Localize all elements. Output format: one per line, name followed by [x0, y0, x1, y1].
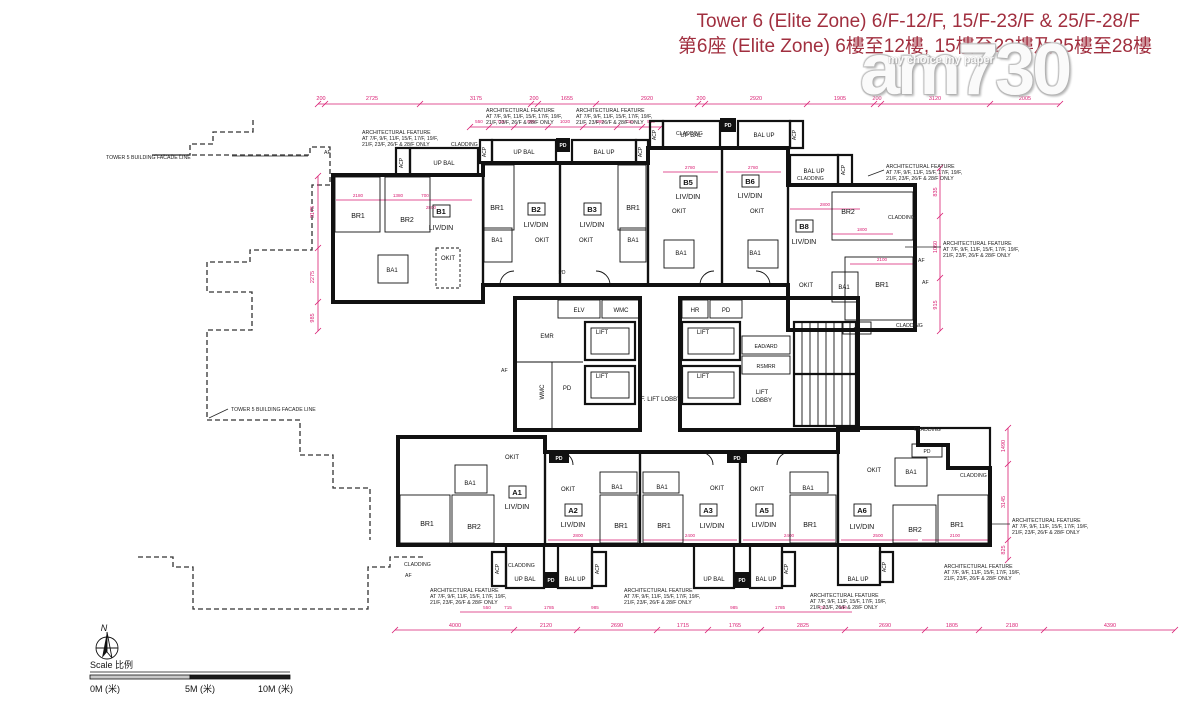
- a6-living-label: LIV/DIN: [850, 524, 875, 531]
- b1-kitchen-label: OKIT: [441, 256, 455, 262]
- b1-living-label: LIV/DIN: [429, 225, 454, 232]
- a3-living-label: LIV/DIN: [700, 523, 725, 530]
- f-lift-lobby-label: F. LIFT LOBBY: [641, 397, 681, 403]
- dim-bot-6: 2690: [879, 623, 891, 629]
- lift-2-label: LIFT: [596, 374, 609, 380]
- balcony-label-a6: BAL UP: [847, 577, 868, 583]
- a2-code-label: A2: [568, 506, 578, 515]
- a6-br2-wall: [893, 505, 936, 543]
- b6-kitchen-label: OKIT: [750, 209, 764, 215]
- plan-title-line2: 第6座 (Elite Zone) 6樓至12樓, 15樓至23樓及25樓至28樓: [678, 35, 1152, 57]
- dim-left-1: 2275: [310, 271, 316, 283]
- dim-top-4: 1655: [561, 96, 573, 102]
- scale-seg-0-5: [90, 675, 190, 679]
- scale-5m-label: 5M (米): [185, 683, 215, 694]
- b2-bath-label: BA1: [491, 238, 503, 244]
- dim-int-10: 2400: [685, 533, 696, 538]
- dim-top-11: 2005: [1019, 96, 1031, 102]
- facade-line-label-2: TOWER 5 BUILDING FACADE LINE: [231, 407, 316, 413]
- scale-title: Scale 比例: [90, 659, 133, 670]
- arch-note-9-l3: 21/F, 23/F, 26/F & 28/F ONLY: [1012, 530, 1080, 536]
- arch-note-8: ARCHITECTURAL FEATURE AT 7/F, 9/F, 11/F,…: [810, 593, 886, 611]
- facade-line-label-1: TOWER 5 BUILDING FACADE LINE: [106, 155, 191, 161]
- a1-living-label: LIV/DIN: [505, 504, 530, 511]
- arch-note-1: ARCHITECTURAL FEATURE AT 7/F, 9/F, 11/F,…: [362, 130, 438, 148]
- b3-code-label: B3: [587, 205, 597, 214]
- a3-br1-wall: [643, 495, 683, 543]
- tower5-facade-outline: TOWER 5 BUILDING FACADE LINE TOWER 5 BUI…: [106, 120, 425, 609]
- acp-label-b6: ACP: [792, 129, 798, 140]
- a2-living-label: LIV/DIN: [561, 522, 586, 529]
- arch-note-8-l3: 21/F, 23/F, 26/F & 28/F ONLY: [810, 605, 878, 611]
- lift-1-label: LIFT: [596, 330, 609, 336]
- a1-bath-label: BA1: [464, 481, 476, 487]
- a6-pd-label: PD: [924, 449, 931, 455]
- floor-plan-page: TOWER 5 BUILDING FACADE LINE TOWER 5 BUI…: [0, 0, 1179, 714]
- arch-note-7: ARCHITECTURAL FEATURE AT 7/F, 9/F, 11/F,…: [624, 588, 700, 606]
- balcony-label-b6: BAL UP: [753, 133, 774, 139]
- a3-pd-label: PD: [734, 456, 741, 462]
- dim-int-0: 2180: [353, 193, 364, 198]
- arch-note-4-l3: 21/F, 23/F, 26/F & 28/F ONLY: [886, 176, 954, 182]
- b5-code-label: B5: [683, 178, 693, 187]
- b5-living-label: LIV/DIN: [676, 194, 701, 201]
- dim-bot-8: 2180: [1006, 623, 1018, 629]
- dim-innerbot-3: 985: [591, 605, 599, 610]
- north-arrow: N: [96, 623, 118, 659]
- facade-dash-top: [152, 120, 253, 155]
- a5-code-label: A5: [759, 506, 769, 515]
- b3-br1-label: BR1: [626, 205, 640, 212]
- b8-living-label: LIV/DIN: [792, 239, 817, 246]
- b2-br1-wall: [484, 165, 514, 230]
- b8-code-label: B8: [799, 222, 809, 231]
- arch-note-9: ARCHITECTURAL FEATURE AT 7/F, 9/F, 11/F,…: [992, 518, 1088, 536]
- staircase: [794, 322, 856, 426]
- af-label-1: AF: [324, 150, 331, 156]
- dim-innerbot-1: 715: [504, 605, 512, 610]
- a6-code-label: A6: [857, 506, 867, 515]
- af-label-5: AF: [405, 573, 412, 579]
- elv-label: ELV: [574, 308, 585, 314]
- dim-left-0: 3175: [310, 206, 316, 218]
- dim-top-3: 200: [529, 96, 538, 102]
- dim-bot-7: 1805: [946, 623, 958, 629]
- b3-kitchen-label: OKIT: [579, 238, 593, 244]
- af-label-2: AF: [501, 368, 508, 374]
- dim-int-7: 1800: [857, 227, 868, 232]
- dim-int-8: 2100: [877, 257, 888, 262]
- a5-living-label: LIV/DIN: [752, 522, 777, 529]
- arch-note-3: ARCHITECTURAL FEATURE AT 7/F, 9/F, 11/F,…: [576, 108, 652, 126]
- dim-int-5: 2780: [748, 165, 759, 170]
- pd-label-bottom-2: PD: [739, 578, 746, 584]
- cladding-label-3: CLADDING: [797, 176, 824, 182]
- acp-label-a5: ACP: [784, 563, 790, 574]
- dim-top-10: 3120: [929, 96, 941, 102]
- balcony-label-b1: UP BAL: [433, 161, 455, 167]
- dim-int-3: 2800: [426, 205, 437, 210]
- balcony-label-a2: BAL UP: [564, 577, 585, 583]
- b8-bath-label: BA1: [838, 285, 850, 291]
- arch-note-1-l3: 21/F, 23/F, 26/F & 28/F ONLY: [362, 142, 430, 148]
- b1-br2-label: BR2: [400, 217, 414, 224]
- plan-title-line1: Tower 6 (Elite Zone) 6/F-12/F, 15/F-23/F…: [697, 11, 1141, 32]
- balcony-label-a1: UP BAL: [514, 577, 536, 583]
- facade-label-leader-2: [209, 409, 228, 418]
- b1-code-label: B1: [436, 207, 446, 216]
- dim-top-1: 2725: [366, 96, 378, 102]
- dim-bot-0: 4000: [449, 623, 461, 629]
- b1-bath-label: BA1: [386, 268, 398, 274]
- unit-a3-area: [640, 452, 740, 545]
- b2-pd-label: PD: [559, 270, 566, 276]
- lift-4-car: [688, 372, 734, 398]
- facade-dash-main: [152, 147, 370, 540]
- lift-4-label: LIFT: [697, 374, 710, 380]
- upper-wing-outer-wall: [333, 148, 915, 330]
- dim-rup-2: 915: [933, 300, 939, 309]
- arch-note-4: ARCHITECTURAL FEATURE AT 7/F, 9/F, 11/F,…: [868, 164, 962, 182]
- core-pd-left-label: PD: [563, 386, 572, 392]
- cladding-label-4: CLADDING: [888, 215, 915, 221]
- a1-br2-label: BR2: [467, 524, 481, 531]
- dim-int-6: 2800: [820, 202, 831, 207]
- dim-left-2: 985: [310, 313, 316, 322]
- a2-pd-label: PD: [556, 456, 563, 462]
- upper-wing: ACP UP BAL ACP UP BAL PD BAL UP ACP ACP …: [333, 118, 915, 334]
- a6-kitchen-label: OKIT: [867, 468, 881, 474]
- pd-label-bottom-1: PD: [548, 578, 555, 584]
- b8-br1-label: BR1: [875, 282, 889, 289]
- unit-a2-area: [545, 452, 640, 545]
- arch-note-6-l3: 21/F, 23/F, 26/F & 28/F ONLY: [430, 600, 498, 606]
- cladding-label-7: CLADDING: [960, 473, 987, 479]
- dim-innertop-0: 550: [475, 119, 483, 124]
- lift-lobby-label-1: LIFT: [756, 390, 769, 396]
- b8-br2-label: BR2: [841, 209, 855, 216]
- dim-top-2: 3175: [470, 96, 482, 102]
- af-label-3: AF: [918, 258, 925, 264]
- dim-int-9: 2800: [573, 533, 584, 538]
- facade-dash-bottom: [138, 557, 425, 609]
- a2-bath-label: BA1: [611, 485, 623, 491]
- pd-label-top-1: PD: [560, 143, 567, 149]
- cladding-label-2: CLADDING: [676, 131, 703, 137]
- balcony-label-b8: BAL UP: [803, 169, 824, 175]
- dim-innerbot-4: 985: [730, 605, 738, 610]
- dim-int-11: 2400: [784, 533, 795, 538]
- compass-needle-solid: [102, 632, 107, 658]
- b1-br1-label: BR1: [351, 213, 365, 220]
- a2-br1-label: BR1: [614, 523, 628, 530]
- dim-top-5: 2920: [641, 96, 653, 102]
- lift-3-car: [688, 328, 734, 354]
- a1-br2-wall: [452, 495, 494, 543]
- acp-label-b8: ACP: [841, 164, 847, 175]
- balcony-label-b2: UP BAL: [513, 150, 535, 156]
- b3-bath-label: BA1: [627, 238, 639, 244]
- arch-note-10: ARCHITECTURAL FEATURE AT 7/F, 9/F, 11/F,…: [944, 564, 1020, 582]
- ead-ard-label: EAD/ARD: [754, 344, 777, 350]
- b2-living-label: LIV/DIN: [524, 222, 549, 229]
- a2-kitchen-label: OKIT: [561, 487, 575, 493]
- core: EMR ELV WMC LIFT LIFT PD WMC F. LIFT LOB…: [515, 298, 858, 430]
- b6-code-label: B6: [745, 177, 755, 186]
- dim-int-4: 2780: [685, 165, 696, 170]
- dim-bot-9: 4390: [1104, 623, 1116, 629]
- b1-kitchen-zone: [436, 248, 460, 288]
- scale-10m-label: 10M (米): [258, 683, 293, 694]
- arch-note-2: ARCHITECTURAL FEATURE AT 7/F, 9/F, 11/F,…: [486, 108, 562, 126]
- rsmrr-label: RSMRR: [756, 364, 775, 370]
- acp-label-b2: ACP: [482, 146, 488, 157]
- dim-int-1: 1380: [393, 193, 404, 198]
- acp-label-b3: ACP: [638, 146, 644, 157]
- unit-a5-area: [740, 452, 838, 545]
- emr-label: EMR: [540, 334, 554, 340]
- af-label-4: AF: [922, 280, 929, 286]
- b6-bath-label: BA1: [749, 251, 761, 257]
- dim-rlo-2: 825: [1001, 545, 1007, 554]
- a5-bath-label: BA1: [802, 486, 814, 492]
- dim-bot-5: 2825: [797, 623, 809, 629]
- dim-int-13: 2100: [950, 533, 961, 538]
- acp-label-b1: ACP: [399, 157, 405, 168]
- b3-bath-wall: [620, 228, 646, 262]
- a1-br1-label: BR1: [420, 521, 434, 528]
- b6-living-label: LIV/DIN: [738, 193, 763, 200]
- core-pd-right-label: PD: [722, 308, 731, 314]
- dim-int-12: 2500: [873, 533, 884, 538]
- a3-kitchen-label: OKIT: [710, 486, 724, 492]
- wmc-label: WMC: [614, 308, 630, 314]
- compass-needle-outline: [107, 632, 112, 658]
- north-label: N: [101, 623, 108, 633]
- scale-bar: Scale 比例 0M (米) 5M (米) 10M (米): [90, 659, 293, 694]
- b8-kitchen-label: OKIT: [799, 283, 813, 289]
- a6-br2-label: BR2: [908, 527, 922, 534]
- dim-top-7: 2920: [750, 96, 762, 102]
- a6-bath-label: BA1: [905, 470, 917, 476]
- a5-br1-wall: [790, 495, 836, 543]
- a5-kitchen-label: OKIT: [750, 487, 764, 493]
- b3-br1-wall: [618, 165, 646, 230]
- dim-rlo-1: 3145: [1001, 496, 1007, 508]
- a3-br1-label: BR1: [657, 523, 671, 530]
- dim-rlo-0: 1490: [1001, 440, 1007, 452]
- arch-note-10-l3: 21/F, 23/F, 26/F & 28/F ONLY: [944, 576, 1012, 582]
- arch-note-4-leader: [868, 170, 884, 176]
- arch-note-3-l3: 21/F, 23/F, 26/F & 28/F ONLY: [576, 120, 644, 126]
- a3-bath-label: BA1: [656, 485, 668, 491]
- balcony-label-a3: UP BAL: [703, 577, 725, 583]
- dim-innerbot-5: 1785: [775, 605, 786, 610]
- arch-note-7-l3: 21/F, 23/F, 26/F & 28/F ONLY: [624, 600, 692, 606]
- dim-innerbot-2: 1785: [544, 605, 555, 610]
- balcony-label-a5: BAL UP: [755, 577, 776, 583]
- b2-br1-label: BR1: [490, 205, 504, 212]
- b1-br1-wall: [335, 177, 380, 232]
- dim-bot-3: 1715: [677, 623, 689, 629]
- dim-top-6: 200: [696, 96, 705, 102]
- cladding-label-1: CLADDING: [451, 142, 478, 148]
- dim-top-8: 1905: [834, 96, 846, 102]
- arch-note-5: ARCHITECTURAL FEATURE AT 7/F, 9/F, 11/F,…: [905, 241, 1019, 259]
- a3-code-label: A3: [703, 506, 713, 515]
- dim-int-2: 700: [421, 193, 429, 198]
- acp-label-a6: ACP: [882, 561, 888, 572]
- unit-b8-area: [788, 185, 915, 330]
- dim-bot-4: 1765: [729, 623, 741, 629]
- b5-bath-label: BA1: [675, 251, 687, 257]
- a1-kitchen-label: OKIT: [505, 455, 519, 461]
- acp-label-b5: ACP: [652, 129, 658, 140]
- arch-note-5-l3: 21/F, 23/F, 26/F & 28/F ONLY: [943, 253, 1011, 259]
- arch-note-6: ARCHITECTURAL FEATURE AT 7/F, 9/F, 11/F,…: [430, 588, 506, 606]
- floor-plan-drawing: TOWER 5 BUILDING FACADE LINE TOWER 5 BUI…: [0, 0, 1179, 714]
- lift-lobby-label-2: LOBBY: [752, 398, 772, 404]
- a6-br1-wall: [938, 495, 988, 543]
- cladding-label-6: CLADDING: [914, 427, 941, 433]
- scale-0m-label: 0M (米): [90, 683, 120, 694]
- upper-door-arcs: [500, 271, 770, 285]
- b2-kitchen-label: OKIT: [535, 238, 549, 244]
- a2-br1-wall: [600, 495, 638, 543]
- cladding-label-9: CLADDING: [404, 562, 431, 568]
- unit-b2-area: [483, 163, 560, 285]
- dim-bot-2: 2690: [611, 623, 623, 629]
- a5-br1-label: BR1: [803, 522, 817, 529]
- dim-top-0: 200: [316, 96, 325, 102]
- wmc-vert-label: WMC: [540, 384, 546, 400]
- cladding-label-5: CLADDING: [896, 323, 923, 329]
- dim-top-9: 200: [872, 96, 881, 102]
- arch-note-2-l3: 21/F, 23/F, 26/F & 28/F ONLY: [486, 120, 554, 126]
- pd-label-top-2: PD: [725, 123, 732, 129]
- b2-bath-wall: [484, 228, 512, 262]
- a1-code-label: A1: [512, 488, 522, 497]
- acp-label-a1: ACP: [495, 563, 501, 574]
- dim-rup-0: 835: [933, 187, 939, 196]
- a1-bath-wall: [455, 465, 487, 493]
- acp-label-a2: ACP: [595, 563, 601, 574]
- scale-seg-5-10: [190, 675, 290, 679]
- cladding-label-8: CLADDING: [508, 563, 535, 569]
- hr-label: HR: [691, 308, 700, 314]
- a1-br1-wall: [400, 495, 450, 543]
- a6-br1-label: BR1: [950, 522, 964, 529]
- b5-kitchen-label: OKIT: [672, 209, 686, 215]
- b3-living-label: LIV/DIN: [580, 222, 605, 229]
- lower-wing: PD PD PD BR1 BR2 BA1 OKIT A1 LIV/DIN OKI…: [398, 428, 990, 588]
- balcony-label-b3: BAL UP: [593, 150, 614, 156]
- b2-code-label: B2: [531, 205, 541, 214]
- lift-3-label: LIFT: [697, 330, 710, 336]
- dim-bot-1: 2120: [540, 623, 552, 629]
